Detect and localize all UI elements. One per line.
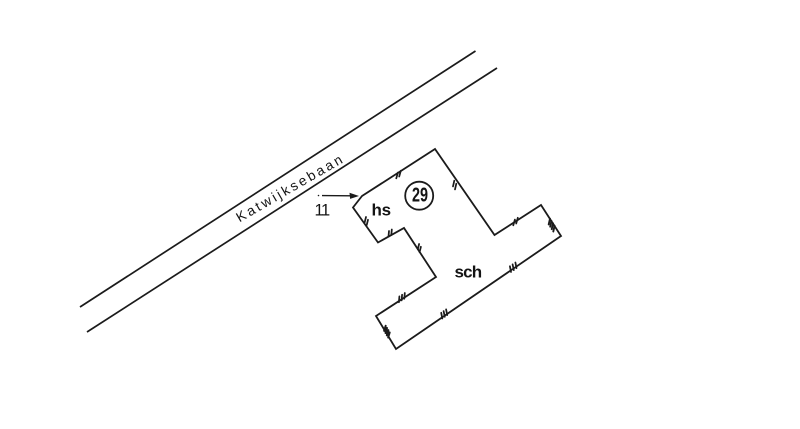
svg-text:11: 11: [315, 202, 331, 220]
svg-text:29: 29: [412, 183, 428, 206]
svg-text:sch: sch: [455, 263, 482, 282]
svg-text:hs: hs: [372, 201, 391, 220]
